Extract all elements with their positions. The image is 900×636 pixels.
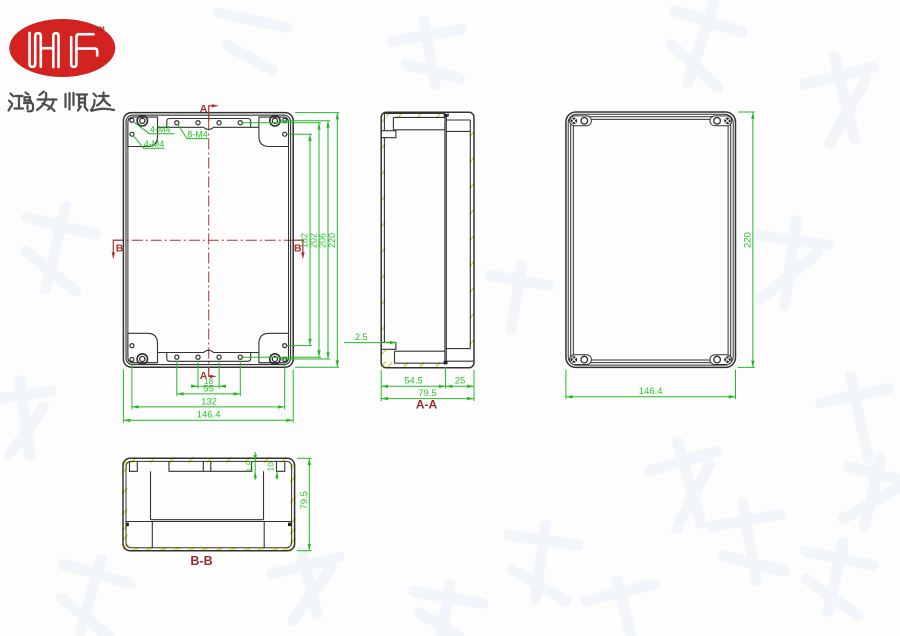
svg-text:132: 132	[201, 397, 217, 408]
svg-text:220: 220	[327, 233, 337, 248]
svg-text:4-M4: 4-M4	[150, 125, 171, 135]
svg-text:8-M4: 8-M4	[187, 130, 208, 140]
svg-text:220: 220	[743, 232, 754, 248]
svg-text:146.4: 146.4	[197, 410, 221, 421]
svg-text:TM: TM	[96, 27, 105, 33]
svg-text:10: 10	[265, 462, 275, 472]
svg-text:79.5: 79.5	[299, 491, 310, 510]
svg-text:B: B	[116, 243, 124, 255]
svg-text:54.5: 54.5	[404, 376, 423, 387]
svg-text:A-A: A-A	[416, 397, 438, 411]
svg-text:4-M4: 4-M4	[144, 139, 165, 149]
svg-text:146.4: 146.4	[639, 386, 663, 397]
svg-text:55: 55	[203, 383, 214, 394]
svg-text:A: A	[200, 103, 208, 115]
svg-text:B-B: B-B	[190, 554, 212, 568]
svg-text:25: 25	[455, 376, 466, 387]
svg-text:1.8: 1.8	[244, 460, 254, 472]
svg-text:2.5: 2.5	[355, 332, 368, 342]
